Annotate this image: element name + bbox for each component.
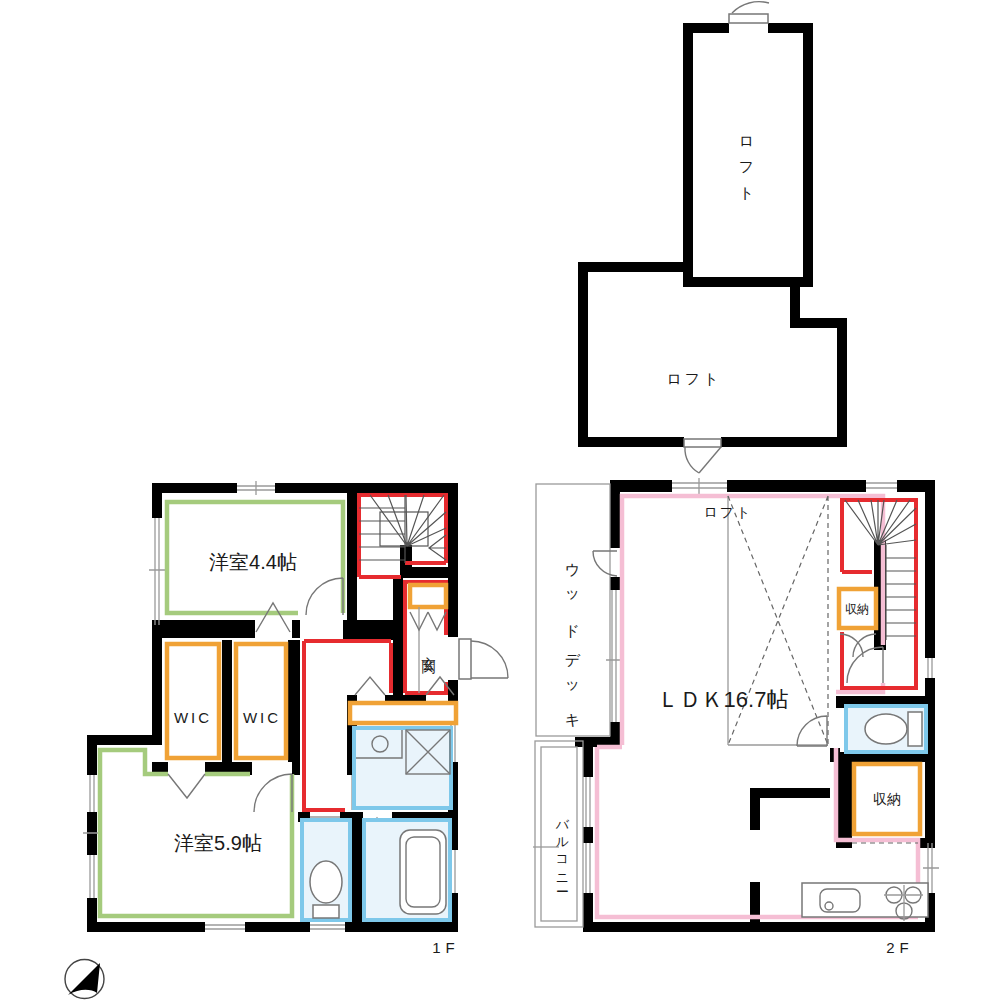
shoe-cabinet-box (410, 585, 446, 607)
toilet-1f-icon (310, 861, 342, 918)
floorplan-drawing (0, 0, 1000, 1000)
deck-door-icon (593, 551, 617, 576)
label-ldk: ＬＤＫ16.7帖 (658, 685, 789, 715)
label-loft-upper: ロフト (737, 126, 756, 201)
label-floor1: 1F (432, 939, 460, 956)
wic-right-box (236, 644, 286, 758)
wic-left-box (167, 644, 219, 758)
label-room-4-4: 洋室4.4帖 (209, 549, 297, 576)
label-floor2: 2F (886, 939, 914, 956)
floorplan-canvas: ロフト ロフト 洋室4.4帖 WIC WIC 玄関 洋室5.9帖 1F ウッドデ… (0, 0, 1000, 1000)
label-storage-lower: 収納 (873, 791, 901, 809)
label-wic-right: WIC (243, 709, 281, 726)
storage-upper-doors-icon (840, 634, 876, 657)
loft-access-door-icon (684, 439, 721, 473)
loft-upper-door-icon (729, 2, 769, 23)
bathtub-icon (400, 830, 446, 914)
label-room-5-9: 洋室5.9帖 (174, 830, 262, 857)
kitchen-icon (802, 883, 928, 921)
label-wic-left: WIC (174, 709, 212, 726)
label-balcony: バルコニー (553, 809, 571, 888)
hall-2f-door-icon (847, 647, 883, 683)
label-genkan: 玄関 (420, 645, 438, 655)
toilet-2f-icon (865, 712, 922, 746)
label-storage-upper: 収納 (845, 601, 869, 618)
label-wood-deck: ウッドデッキ (563, 552, 582, 733)
label-loft-mark: ロフト (704, 504, 753, 522)
counter-box (350, 703, 456, 723)
label-loft-lower: ロフト (666, 370, 721, 389)
compass-icon (65, 960, 104, 999)
loft-section (578, 2, 847, 473)
